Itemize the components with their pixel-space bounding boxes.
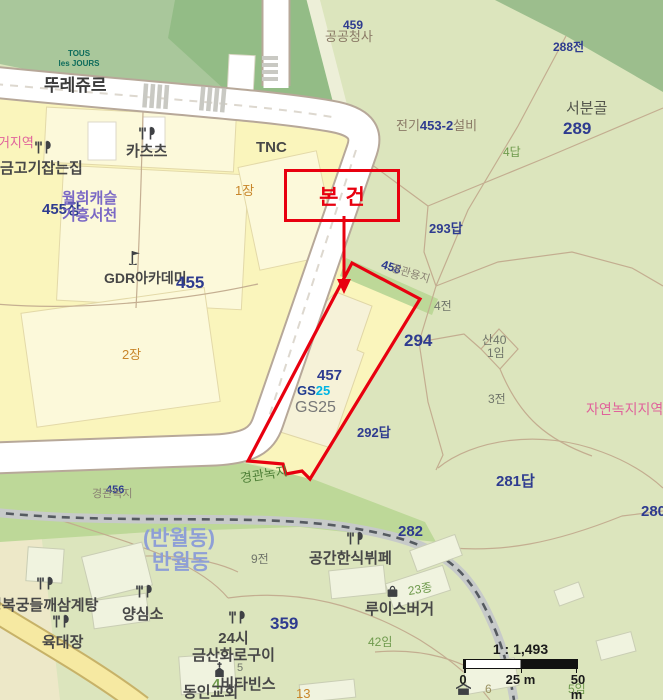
parcel-5: 5 xyxy=(237,662,243,674)
scalebar-label-0: 0 xyxy=(459,672,466,687)
road-label-toureju[interactable]: 뚜레쥬르 xyxy=(44,77,107,96)
poi-yukdaejang[interactable]: 육대장 xyxy=(42,635,83,652)
zone-banwol: 반월동 xyxy=(152,551,210,574)
zone-banwol-paren: (반월동) xyxy=(143,527,215,550)
poi-geumgogi[interactable]: 금고기잡는집 xyxy=(0,161,83,178)
poi-geumsan-bbq[interactable]: 24시금산화로구이 xyxy=(186,631,281,664)
subject-callout-box: 본건 xyxy=(284,169,400,222)
zone-electric-facility: 전기453-2설비 xyxy=(396,119,477,133)
scalebar-ratio: 1 : 1,493 xyxy=(463,641,578,657)
parcel-9jeon: 9전 xyxy=(251,553,269,566)
parcel-1jang: 1장 xyxy=(235,184,254,198)
parcel-293dap: 293답 xyxy=(429,222,463,236)
parcel-289: 289 xyxy=(563,120,591,139)
parcel-455: 455 xyxy=(176,274,204,293)
poi-tous-les-jours[interactable]: TOUSles JOURS xyxy=(56,49,102,70)
zone-jugeo: 주거지역 xyxy=(0,136,34,150)
parcel-294: 294 xyxy=(404,332,432,351)
parcel-13: 13 xyxy=(296,687,310,700)
map-base-layers xyxy=(0,0,663,700)
zone-landscape-bottom: 경관녹지 xyxy=(92,488,132,500)
poi-katsu[interactable]: 카츠츠 xyxy=(126,144,167,161)
poi-gyeongbokgung[interactable]: 경복궁들깨삼계탕 xyxy=(0,598,98,615)
scalebar-label-50: 50 m xyxy=(571,672,585,700)
poi-tnc[interactable]: TNC xyxy=(256,140,287,157)
poi-louis-burger[interactable]: 루이스버거 xyxy=(365,602,434,619)
zone-seobungol: 서분골 xyxy=(566,101,607,118)
parcel-3jeon: 3전 xyxy=(488,393,506,406)
parcel-4jeon: 4전 xyxy=(434,300,452,313)
parcel-280: 280 xyxy=(641,504,663,521)
poi-gs25-name[interactable]: GS25 xyxy=(295,399,336,417)
map-canvas[interactable]: TOUSles JOURS 뚜레쥬르 주거지역 카츠츠 TNC 금고기잡는집 1… xyxy=(0,0,663,700)
parcel-42im: 42임 xyxy=(368,636,392,649)
parcel-282: 282 xyxy=(398,524,423,541)
poi-gdr-academy[interactable]: GDR아카데미 xyxy=(104,271,187,286)
parcel-288: 288전 xyxy=(553,41,584,54)
scalebar-bar xyxy=(463,659,578,669)
scalebar-labels: 0 25 m 50 m xyxy=(463,672,578,688)
scalebar-label-25: 25 m xyxy=(506,672,536,687)
parcel-2jang: 2장 xyxy=(122,348,141,362)
parcel-292dap: 292답 xyxy=(357,426,391,440)
poi-yangsimso[interactable]: 양심소 xyxy=(122,607,163,624)
poi-gonggan-buffet[interactable]: 공간한식뷔페 xyxy=(309,551,392,568)
poi-gs25-logo[interactable]: GS25 xyxy=(297,384,330,398)
parcel-4dap: 4답 xyxy=(503,146,521,159)
scalebar: 1 : 1,493 0 25 m 50 m xyxy=(463,641,578,688)
parcel-281dap: 281답 xyxy=(496,474,535,491)
poi-dongin-church[interactable]: 동인교회 xyxy=(183,685,238,700)
parcel-459: 459 xyxy=(343,19,363,32)
parcel-1im: 1임 xyxy=(487,347,505,360)
poi-wolhee-castle[interactable]: 월희캐슬기흥서천 xyxy=(62,191,117,224)
subject-callout-label: 본건 xyxy=(312,181,372,211)
zone-nokji: 자연녹지지역 xyxy=(586,402,663,417)
